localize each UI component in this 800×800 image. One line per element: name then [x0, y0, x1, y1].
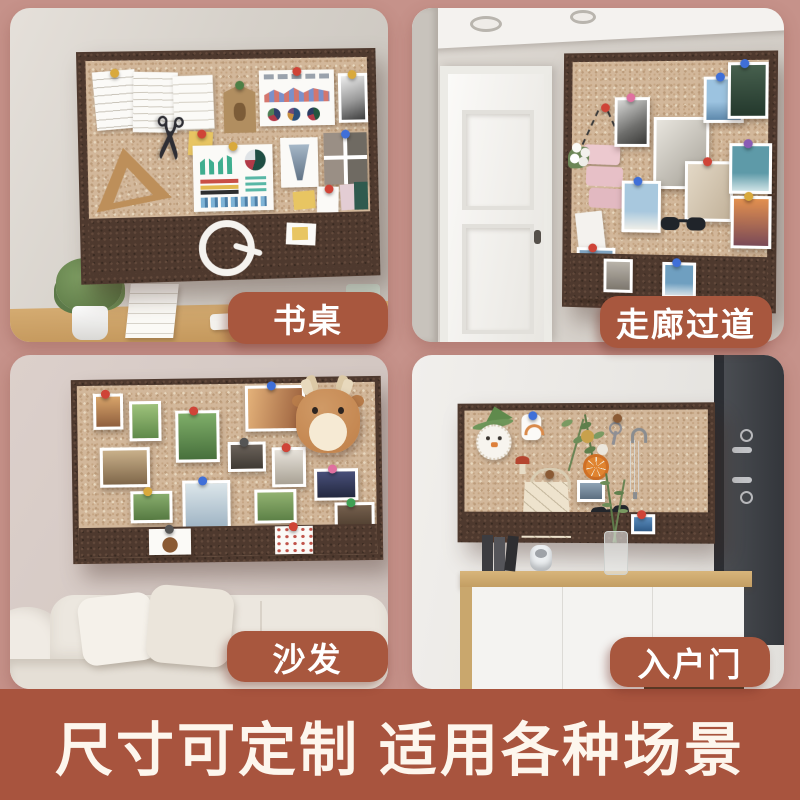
plant-pot — [72, 306, 108, 340]
data-rows — [245, 176, 266, 192]
ruler-cutout — [107, 164, 153, 204]
pushpin — [289, 522, 298, 531]
scene-card-hallway — [412, 8, 784, 342]
pushpin — [637, 510, 646, 519]
eucalyptus-leaf — [560, 418, 573, 428]
cork-surface — [464, 409, 707, 536]
legend-bars — [200, 179, 238, 195]
white-door — [448, 74, 544, 342]
felt-tray — [79, 524, 377, 558]
photo — [93, 393, 123, 429]
glass-vase — [604, 531, 628, 575]
cork-surface: ✂ — [85, 57, 371, 275]
photo — [129, 401, 162, 441]
pushpin — [601, 103, 610, 112]
pushpin — [588, 243, 597, 252]
corkboard-hallway — [562, 50, 778, 313]
door-panel — [462, 110, 534, 210]
city-bars — [201, 196, 267, 208]
line-chart — [264, 83, 330, 102]
photo-jungle — [728, 62, 769, 119]
sprig-leaf — [600, 481, 610, 485]
pushpin — [528, 411, 537, 420]
rainbow-arc — [524, 424, 544, 435]
recessed-light — [570, 10, 596, 24]
scene-tag-hallway: 走廊过道 — [600, 296, 772, 348]
photo — [175, 410, 220, 463]
pie-chart — [287, 108, 300, 121]
cabinet-seam — [562, 587, 563, 689]
tag-motif — [234, 103, 246, 121]
funnel-card — [280, 137, 319, 188]
photo — [254, 489, 296, 524]
mushroom-charm — [516, 456, 530, 464]
pushpin — [198, 476, 207, 485]
pushpin — [228, 142, 237, 151]
hanging-organizer-pocket — [588, 188, 624, 209]
recessed-light — [470, 16, 502, 32]
pushpin — [672, 258, 681, 267]
deer-plush — [296, 383, 360, 455]
mushroom-stem — [519, 464, 525, 474]
collage-divider — [324, 155, 367, 160]
snowman-eye — [498, 436, 502, 440]
white-flowers — [572, 143, 582, 153]
sticky-note — [292, 227, 308, 240]
pushpin — [267, 381, 276, 390]
door-lock-dot — [740, 491, 753, 504]
funnel-chart — [286, 142, 313, 182]
banner-text: 尺寸可定制 适用各种场景 — [55, 703, 745, 787]
pushpin — [744, 192, 753, 201]
pushpin — [101, 390, 110, 399]
deer-eye — [338, 407, 344, 414]
pushpin — [626, 93, 635, 102]
pushpin — [613, 414, 622, 423]
pushpin — [292, 67, 301, 76]
photo-small — [662, 262, 696, 299]
desk-calendar — [125, 284, 179, 338]
photo-santorini — [621, 181, 661, 233]
deer-belly — [309, 413, 347, 451]
felt-tray — [89, 211, 371, 275]
sunglasses — [661, 215, 707, 232]
hanging-string — [582, 110, 601, 146]
books-stack — [482, 535, 526, 571]
bauble-gold — [581, 430, 594, 443]
pushpin — [328, 464, 337, 473]
scene-tag-sofa: 沙发 — [227, 631, 388, 682]
dashboard-card — [193, 144, 274, 212]
book — [494, 537, 505, 571]
bar-chart — [200, 152, 236, 175]
photo-bw — [614, 97, 650, 147]
scene-tag-desk: 书桌 — [228, 292, 388, 344]
door-panel — [462, 224, 534, 334]
pushpin — [189, 406, 198, 415]
photo — [228, 441, 266, 472]
deer-eye — [312, 407, 318, 414]
sunglasses-lens — [686, 217, 705, 230]
pushpin — [634, 177, 643, 186]
bw-photo — [338, 73, 368, 123]
astronaut-figurine — [530, 545, 552, 571]
pushpin — [545, 470, 554, 479]
hanging-organizer-pocket — [586, 166, 624, 187]
astronaut-visor — [535, 549, 547, 558]
photo-collage-card — [323, 132, 367, 184]
pushpin — [347, 70, 356, 79]
photo-sunset — [730, 196, 771, 249]
sticky-note — [293, 190, 316, 210]
pushpin — [143, 487, 152, 496]
scene-tag-entrance: 入户门 — [610, 637, 770, 687]
pushpin — [346, 498, 355, 507]
photo — [130, 491, 172, 524]
photo-sea — [729, 143, 772, 194]
pushpin — [744, 139, 753, 148]
pushpin — [703, 157, 712, 166]
photo-wide — [100, 447, 151, 488]
cork-surface — [571, 60, 769, 304]
door-knob — [534, 230, 541, 244]
pie-chart — [245, 149, 266, 170]
pushpin — [110, 69, 119, 78]
snowman-eye — [486, 436, 490, 440]
throw-pillow — [76, 591, 158, 668]
pushpin — [282, 443, 291, 452]
door-lock-dot — [740, 429, 753, 442]
photo — [182, 480, 231, 531]
chart-card — [259, 69, 335, 126]
product-poster: ✂ — [0, 0, 800, 800]
wall-edge — [412, 8, 438, 342]
pushpin — [240, 438, 249, 447]
pushpin — [165, 525, 174, 534]
ceiling — [412, 8, 784, 50]
photo-small — [603, 259, 632, 293]
door-handle-bar — [732, 447, 752, 453]
photo-room — [685, 161, 734, 222]
book — [504, 536, 519, 572]
bottom-banner: 尺寸可定制 适用各种场景 — [0, 689, 800, 800]
cabinet-side — [460, 587, 472, 689]
book — [482, 535, 493, 571]
green-booklet — [354, 182, 368, 210]
photo — [314, 468, 358, 501]
corkboard-desk: ✂ — [76, 48, 380, 285]
pushpin — [235, 81, 244, 90]
door-handle-bar — [732, 477, 752, 483]
felt-tray — [464, 512, 707, 537]
throw-pillow — [145, 583, 235, 668]
pie-chart — [307, 107, 320, 120]
corkboard-entrance — [458, 402, 715, 543]
sunglasses-lens — [661, 217, 680, 230]
snowman-nose — [491, 442, 498, 447]
pie-chart — [268, 108, 281, 121]
eucalyptus-stem — [568, 419, 585, 471]
